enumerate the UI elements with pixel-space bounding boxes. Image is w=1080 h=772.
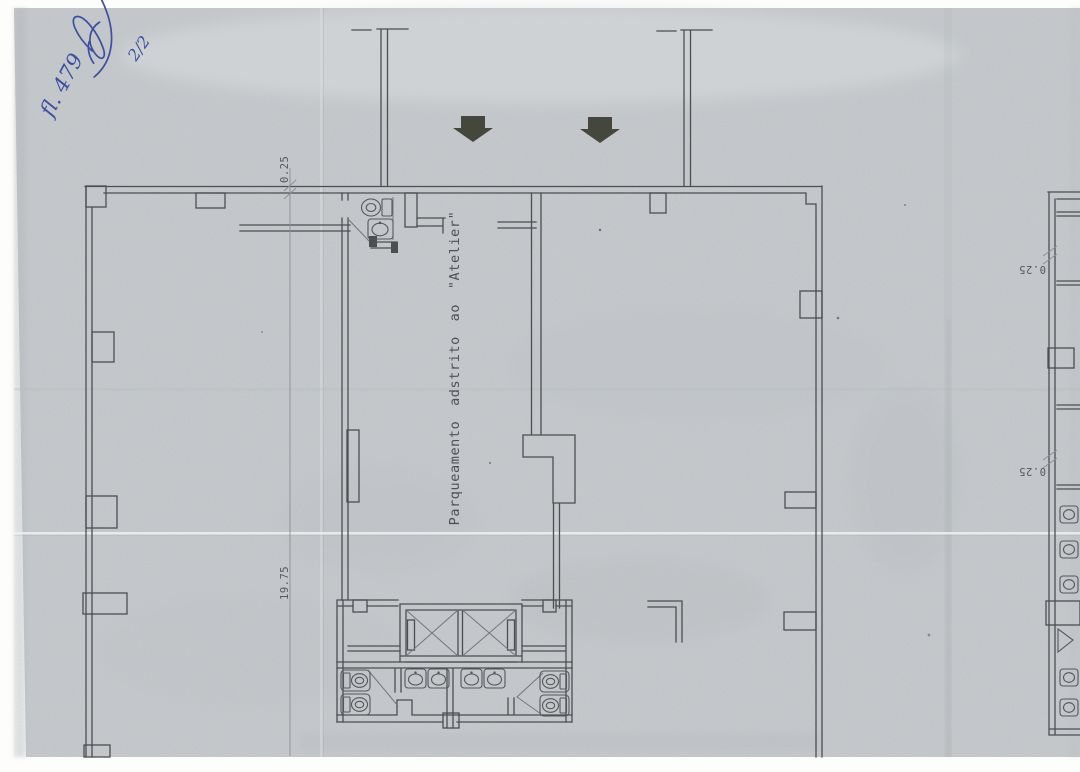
dimension-label-wall: 0.25 bbox=[279, 156, 291, 183]
vertical-fold-crease bbox=[320, 8, 323, 757]
dimension-label-right-upper: 0.25 bbox=[1019, 263, 1046, 275]
horizontal-fold-crease bbox=[14, 388, 1080, 391]
scanned-floor-plan-page: fl. 479 2/2 bbox=[0, 0, 1080, 772]
floor-plan-scan: fl. 479 2/2 bbox=[0, 0, 1080, 772]
dimension-label-length: 19.75 bbox=[279, 566, 291, 600]
vertical-fold-crease bbox=[947, 320, 950, 757]
door-jamb bbox=[391, 242, 398, 253]
dimension-label-right-lower: 0.25 bbox=[1019, 465, 1046, 477]
horizontal-fold-crease bbox=[14, 532, 1080, 535]
parking-zone-label: Parqueamento adstrito ao "Atelier" bbox=[447, 211, 463, 526]
door-jamb bbox=[369, 236, 377, 247]
